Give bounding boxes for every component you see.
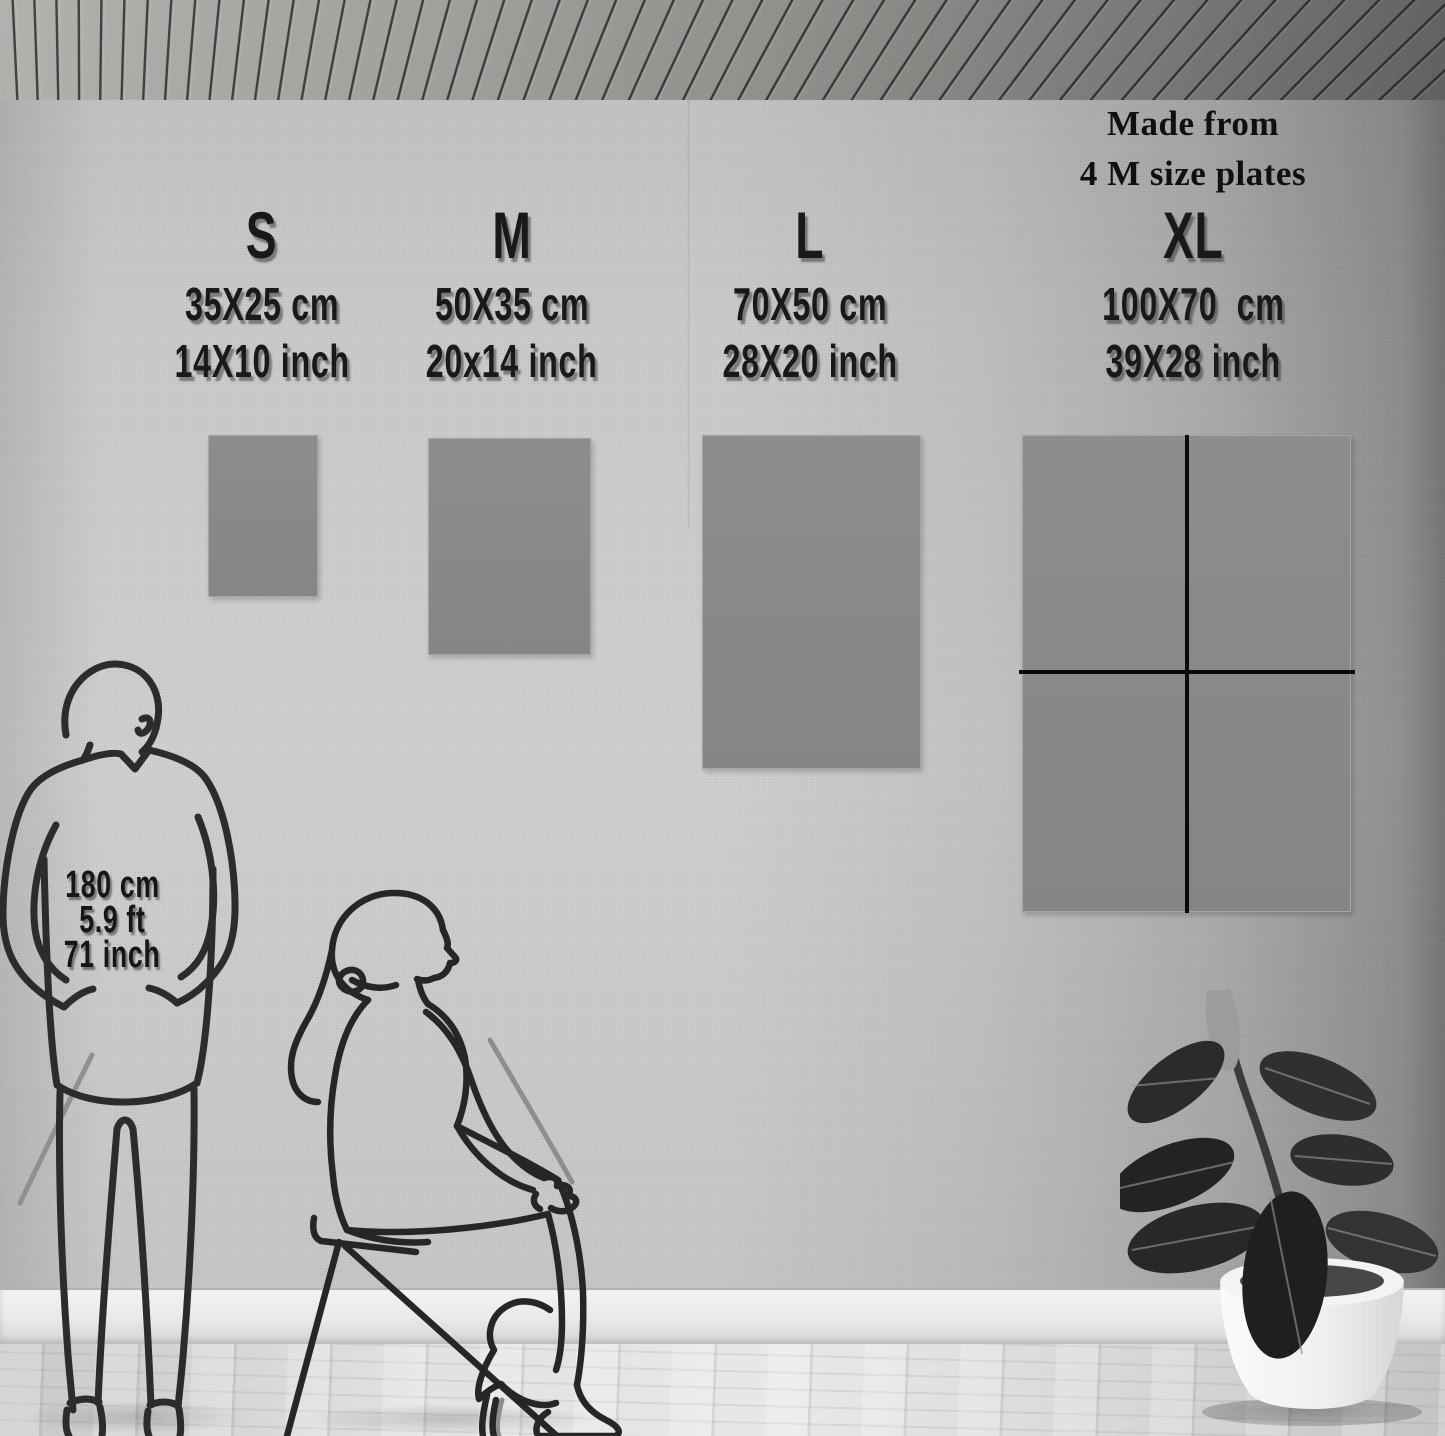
size-label-m-text: M xyxy=(492,202,531,268)
made-from-note-line1: Made from xyxy=(1013,106,1373,141)
size-cm-l-text: 70X50 cm xyxy=(733,281,887,327)
size-plate-m xyxy=(428,438,591,655)
size-label-s-text: S xyxy=(246,202,278,268)
size-plate-l xyxy=(702,435,921,769)
sitting-woman-drawing xyxy=(250,880,670,1436)
potted-plant-drawing xyxy=(1120,990,1445,1436)
height-cm-text: 180 cm xyxy=(65,868,159,903)
size-inch-s-text: 14X10 inch xyxy=(174,338,349,384)
size-inch-m-text: 20x14 inch xyxy=(426,338,598,384)
height-inch-row: 71 inch xyxy=(43,938,181,973)
size-inch-l: 28X20 inch xyxy=(630,338,990,384)
size-cm-l: 70X50 cm xyxy=(630,281,990,327)
height-inch-text: 71 inch xyxy=(64,938,161,973)
height-cm-row: 180 cm xyxy=(43,868,181,903)
size-label-xl: XL xyxy=(1013,202,1373,268)
size-inch-l-text: 28X20 inch xyxy=(722,338,897,384)
height-ft-text: 5.9 ft xyxy=(79,903,145,938)
size-cm-m-text: 50X35 cm xyxy=(435,281,589,327)
size-cm-s-text: 35X25 cm xyxy=(185,281,339,327)
made-from-note-line2: 4 M size plates xyxy=(1013,156,1373,191)
size-inch-xl-text: 39X28 inch xyxy=(1105,338,1280,384)
size-guide-scene: S 35X25 cm 14X10 inch M 50X35 cm 20x14 i… xyxy=(0,0,1445,1436)
sitting-woman-figure xyxy=(250,880,670,1436)
size-plate-s xyxy=(208,435,318,597)
xl-plate-horizontal-divider xyxy=(1019,670,1355,674)
size-cm-xl-text: 100X70 cm xyxy=(1102,281,1284,327)
size-plate-xl xyxy=(1022,435,1351,912)
size-cm-xl: 100X70 cm xyxy=(1013,281,1373,327)
size-inch-xl: 39X28 inch xyxy=(1013,338,1373,384)
xl-plate-vertical-divider xyxy=(1185,435,1189,913)
potted-plant xyxy=(1120,990,1445,1436)
standing-man-figure xyxy=(0,655,270,1436)
size-label-xl-text: XL xyxy=(1163,202,1223,268)
person-height-label: 180 cm 5.9 ft 71 inch xyxy=(43,868,181,973)
height-ft-row: 5.9 ft xyxy=(43,903,181,938)
wood-ceiling xyxy=(0,0,1445,103)
standing-man-drawing xyxy=(0,655,270,1436)
size-label-l: L xyxy=(630,202,990,268)
size-label-l-text: L xyxy=(796,202,825,268)
ceiling-slats-pattern xyxy=(0,0,1445,100)
